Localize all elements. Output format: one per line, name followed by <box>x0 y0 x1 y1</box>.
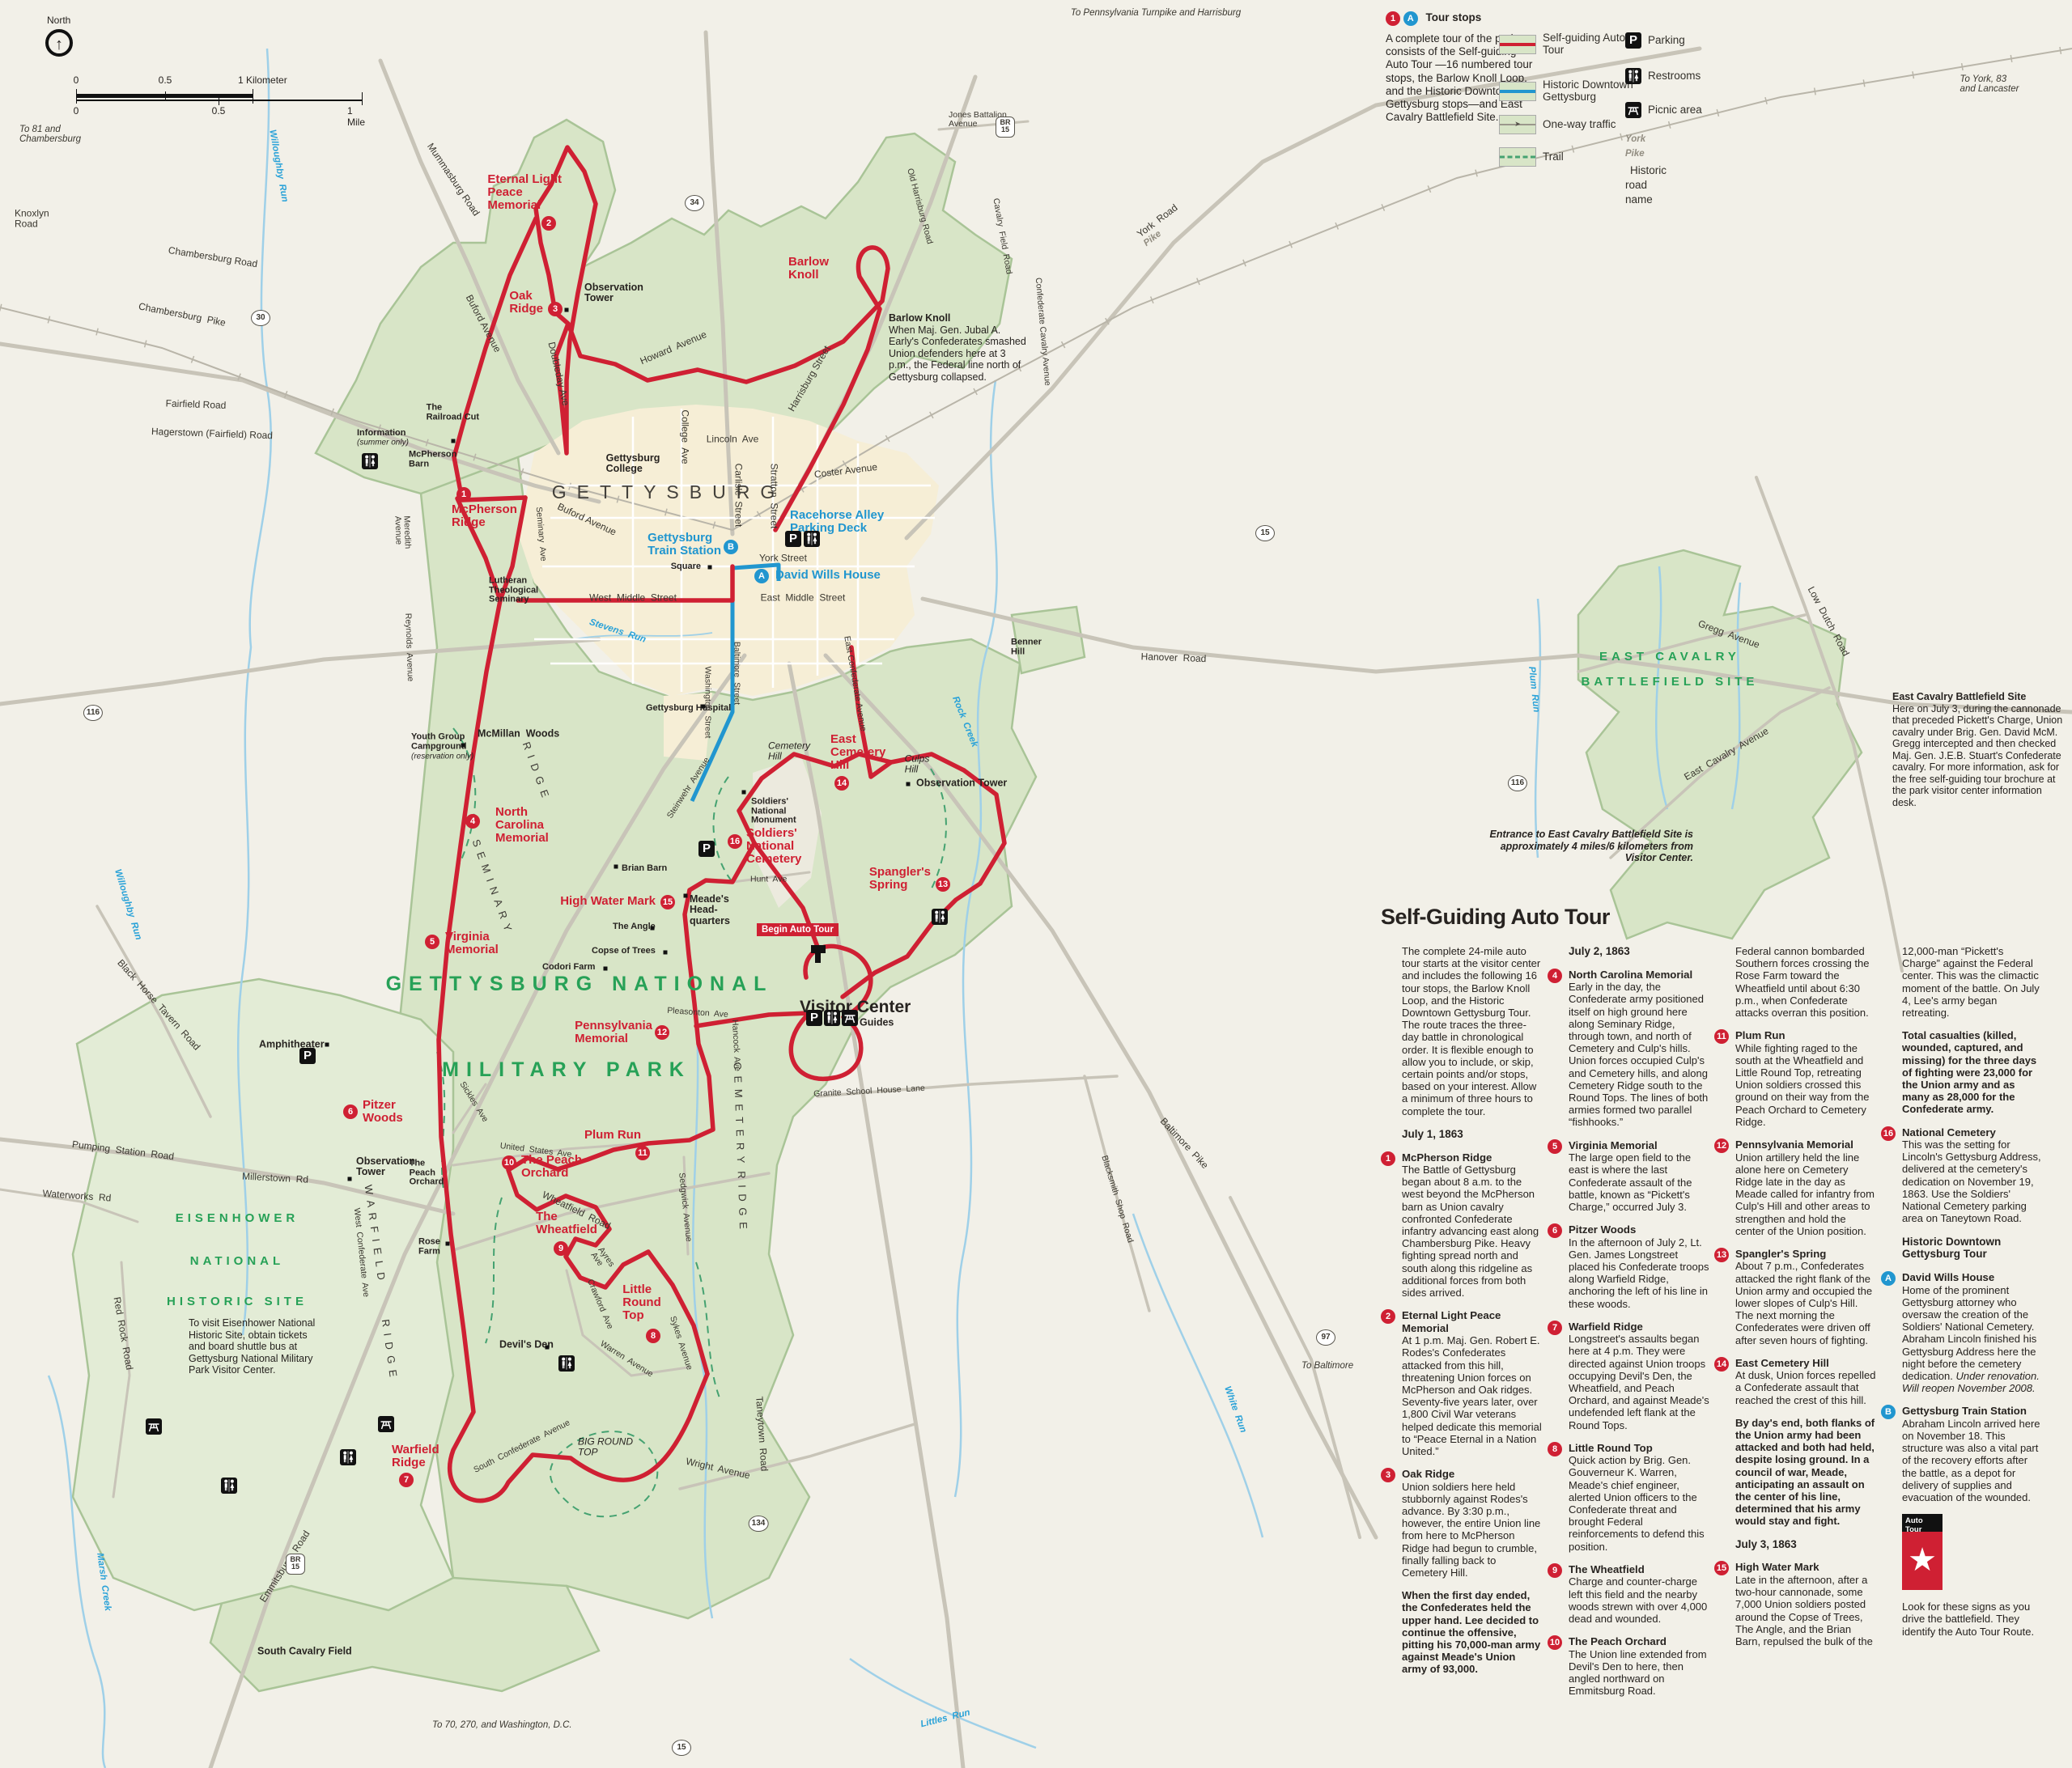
tour-stop-label-10: The Peach Orchard <box>521 1154 582 1180</box>
tour-stop-label-12: Pennsylvania Memorial <box>575 1020 652 1045</box>
legend-tour-stops-label: Tour stops <box>1426 11 1482 23</box>
map-label: GETTYSBURG <box>552 482 785 502</box>
article-stop-4: 4North Carolina MemorialEarly in the day… <box>1569 969 1709 1129</box>
restroom-icon <box>824 1010 840 1026</box>
tour-stop-3: 3 <box>548 302 563 316</box>
stop-title: Oak Ridge <box>1402 1468 1543 1480</box>
legend-swatch-downtown <box>1499 82 1536 101</box>
historic-road-label: Historic road name <box>1625 164 1667 206</box>
restroom-icon <box>804 531 820 547</box>
poi-dot <box>664 951 668 955</box>
map-label: Copse of Trees <box>592 947 656 956</box>
article-title: Self-Guiding Auto Tour <box>1381 905 1610 930</box>
poi-dot <box>651 926 655 931</box>
tour-stop-label-8: Little Round Top <box>622 1283 660 1322</box>
picnic-icon <box>146 1418 162 1435</box>
map-label: Lutheran Theological Seminary <box>489 577 538 605</box>
stop-number-icon: B <box>1881 1405 1896 1419</box>
stop-number-icon: 5 <box>1548 1139 1562 1154</box>
route-shield-116: 116 <box>83 705 103 721</box>
north-arrow-icon: ↑ <box>45 29 73 57</box>
tour-stop-9: 9 <box>554 1241 568 1256</box>
article-stop-3: 3Oak RidgeUnion soldiers here held stubb… <box>1402 1468 1543 1579</box>
poi-dot <box>906 782 911 786</box>
article-stop-A: ADavid Wills HouseHome of the prominent … <box>1902 1271 2043 1394</box>
tour-stop-11: 11 <box>635 1146 650 1160</box>
route-shield-34: 34 <box>685 195 704 211</box>
stop-title: Virginia Memorial <box>1569 1139 1709 1151</box>
parking-icon: P <box>299 1048 316 1064</box>
parking-icon: P <box>1625 32 1641 49</box>
tour-stop-label-11: Plum Run <box>584 1129 641 1142</box>
tour-stop-label-7: Warfield Ridge <box>392 1444 439 1469</box>
map-label: Guides <box>860 1017 894 1028</box>
legend-icon-wrap <box>1625 102 1641 118</box>
stop-title: East Cemetery Hill <box>1735 1357 1876 1369</box>
scale-tick: 0 <box>74 74 79 86</box>
scale-tick: 0.5 <box>159 74 172 86</box>
tour-stop-A: A <box>754 569 769 583</box>
article-stop-13: 13Spangler's SpringAbout 7 p.m., Confede… <box>1735 1248 1876 1346</box>
tour-stop-label-3: Oak Ridge <box>509 290 543 316</box>
route-shield-134: 134 <box>749 1516 769 1532</box>
article-stop-B: BGettysburg Train StationAbraham Lincoln… <box>1902 1405 2043 1503</box>
picnic-icon <box>1625 102 1641 118</box>
tour-stop-label-13: Spangler's Spring <box>869 866 931 892</box>
tour-stop-number-icon: 1 <box>1386 11 1400 26</box>
tour-stop-2: 2 <box>541 216 556 231</box>
note-barlow: Barlow KnollWhen Maj. Gen. Jubal A. Earl… <box>889 312 1028 383</box>
legend-tour-stops: 1 A Tour stops A complete tour of the pa… <box>1386 11 1533 124</box>
tour-stop-7: 7 <box>399 1473 414 1487</box>
article-bold-paragraph: Total casualties (killed, wounded, captu… <box>1902 1029 2043 1115</box>
map-label: Soldiers' National Monument <box>751 798 796 826</box>
tour-stop-15: 15 <box>660 895 675 909</box>
route-shield-97: 97 <box>1316 1329 1335 1346</box>
tour-stop-label-14: East Cemetery Hill <box>830 733 885 772</box>
legend-swatch-oneway <box>1499 115 1536 134</box>
article-paragraph: The complete 24-mile auto tour starts at… <box>1402 945 1543 1117</box>
tour-stop-4: 4 <box>465 814 480 829</box>
poi-dot <box>565 308 569 312</box>
tour-stop-label-15: High Water Mark <box>560 895 656 908</box>
article-stop-8: 8Little Round TopQuick action by Brig. G… <box>1569 1442 1709 1553</box>
map-label: To Pennsylvania Turnpike and Harrisburg <box>1071 8 1241 18</box>
legend-label: Parking <box>1648 35 1685 47</box>
article-stop-1: 1McPherson RidgeThe Battle of Gettysburg… <box>1402 1151 1543 1300</box>
parking-icon: P <box>785 531 801 547</box>
article-stop-6: 6Pitzer WoodsIn the afternoon of July 2,… <box>1569 1223 1709 1310</box>
tour-stop-label-16: Soldiers' National Cemetery <box>746 827 801 866</box>
tour-stop-label-B: Gettysburg Train Station <box>647 532 721 558</box>
article-stop-9: 9The WheatfieldCharge and counter-charge… <box>1569 1563 1709 1625</box>
article-stop-16: 16National CemeteryThis was the setting … <box>1902 1126 2043 1225</box>
legend-item-trail: Trail <box>1499 147 1564 167</box>
map-label: BATTLEFIELD SITE <box>1582 676 1759 689</box>
begin-auto-tour-tag: Begin Auto Tour <box>757 923 839 936</box>
map-label: East Middle Street <box>761 593 846 604</box>
map-label: Lincoln Ave <box>707 435 759 445</box>
legend-item-restroom: Restrooms <box>1625 68 1700 84</box>
gettysburg-park-map: North ↑ 00.51 Kilometer 00.51 Mile 1 A T… <box>0 0 2072 1768</box>
map-label: To 70, 270, and Washington, D.C. <box>432 1720 572 1730</box>
map-label: MILITARY PARK <box>442 1059 691 1081</box>
map-label: Hanover Road <box>1140 651 1206 664</box>
article-stop-5: 5Virginia MemorialThe large open field t… <box>1569 1139 1709 1213</box>
legend-icon-wrap: P <box>1625 32 1641 49</box>
legend-icon-wrap <box>1625 68 1641 84</box>
stop-title: David Wills House <box>1902 1271 2043 1283</box>
map-label: Reynolds Avenue <box>403 613 414 682</box>
map-label: Washington Street <box>703 667 711 739</box>
poi-dot <box>742 791 746 795</box>
legend-label: Restrooms <box>1648 70 1700 83</box>
tour-stop-6: 6 <box>343 1104 358 1119</box>
stop-number-icon: 4 <box>1548 969 1562 983</box>
stop-number-icon: 15 <box>1714 1561 1729 1575</box>
map-label: EAST CAVALRY <box>1599 651 1740 664</box>
legend-item-picnic: Picnic area <box>1625 102 1702 118</box>
map-label: Observation Tower <box>916 778 1007 788</box>
map-label: GETTYSBURG NATIONAL <box>386 973 774 995</box>
tour-stop-label-9: The Wheatfield <box>536 1210 597 1236</box>
route-shield-15: 15 <box>1255 525 1275 541</box>
article-stop-10: 10The Peach OrchardThe Union line extend… <box>1569 1635 1709 1697</box>
map-label: Gettysburg Hospital <box>646 704 731 714</box>
note-eisenhower: To visit Eisenhower National Historic Si… <box>189 1317 316 1376</box>
legend-swatch-auto <box>1499 35 1536 54</box>
stop-number-icon: A <box>1881 1271 1896 1286</box>
map-label: Square <box>671 562 701 572</box>
map-label: To Baltimore <box>1301 1361 1353 1371</box>
map-label: West Middle Street <box>589 593 677 604</box>
stop-title: Gettysburg Train Station <box>1902 1405 2043 1417</box>
poi-dot <box>325 1043 329 1047</box>
map-label: R I D G E <box>736 1171 749 1231</box>
map-label: To 81 and Chambersburg <box>19 125 81 144</box>
legend-item-auto: Self-guiding Auto Tour <box>1499 32 1625 57</box>
poi-dot <box>348 1177 352 1181</box>
scale-tick: 1 Kilometer <box>238 74 287 86</box>
article-stop-14: 14East Cemetery HillAt dusk, Union force… <box>1735 1357 1876 1406</box>
auto-tour-sign: Auto Tour★ <box>1902 1514 1942 1590</box>
map-label: Cemetery Hill <box>768 740 810 761</box>
scale-tick: 0.5 <box>212 105 226 117</box>
map-label: South Cavalry Field <box>257 1646 352 1656</box>
poi-dot <box>614 865 618 869</box>
map-label: Observation Tower <box>356 1156 415 1178</box>
stop-title: National Cemetery <box>1902 1126 2043 1138</box>
legend-item-oneway: One-way traffic <box>1499 115 1616 134</box>
map-label: The Angle <box>613 922 656 932</box>
legend-item-downtown: Historic Downtown Gettysburg <box>1499 79 1633 104</box>
stop-italic-note: Under renovation. Will reopen November 2… <box>1902 1370 2040 1394</box>
map-label: EISENHOWER <box>176 1212 299 1225</box>
stop-title: Plum Run <box>1735 1029 1876 1041</box>
restroom-icon <box>221 1478 237 1494</box>
auto-tour-sign-header: Auto Tour <box>1902 1514 1942 1532</box>
map-label: (reservation only) <box>411 753 473 762</box>
article-stop-15: 15High Water MarkLate in the afternoon, … <box>1735 1561 1876 1647</box>
map-label: College Ave <box>680 409 690 464</box>
article-bold-paragraph: By day's end, both flanks of the Union a… <box>1735 1417 1876 1528</box>
map-label: Barlow Knoll <box>788 256 829 282</box>
stop-number-icon: 10 <box>1548 1635 1562 1650</box>
stop-number-icon: 16 <box>1881 1126 1896 1141</box>
map-label: Meredith Avenue <box>393 515 412 549</box>
poi-dot <box>708 566 712 570</box>
stop-number-icon: 1 <box>1381 1151 1395 1166</box>
tour-stop-16: 16 <box>728 834 742 849</box>
scale-tick: 0 <box>74 105 79 117</box>
stop-number-icon: 9 <box>1548 1563 1562 1578</box>
tour-stop-12: 12 <box>655 1025 669 1040</box>
note-entrance: Entrance to East Cavalry Battlefield Sit… <box>1480 829 1693 864</box>
restroom-icon <box>558 1355 575 1372</box>
article-stop-2: 2Eternal Light Peace MemorialAt 1 p.m. M… <box>1402 1309 1543 1457</box>
map-label: McMillan Woods <box>478 728 559 739</box>
map-label: McPherson Barn <box>409 450 456 468</box>
stop-number-icon: 3 <box>1381 1468 1395 1482</box>
legend-label: Self-guiding Auto Tour <box>1543 32 1625 57</box>
tour-stop-14: 14 <box>834 776 849 791</box>
article-heading: July 2, 1863 <box>1569 945 1709 958</box>
restroom-icon <box>932 909 948 925</box>
map-label: To York, 83 and Lancaster <box>1960 74 2019 94</box>
map-label: Culps Hill <box>905 753 930 774</box>
tour-stop-B: B <box>724 540 738 554</box>
legend-item-parking: PParking <box>1625 32 1685 49</box>
route-shield-30: 30 <box>251 310 270 326</box>
map-label: Fairfield Road <box>165 398 226 410</box>
route-shield-BR15: BR 15 <box>996 117 1015 138</box>
map-label: Observation Tower <box>584 282 643 304</box>
map-label: Meade's Head- quarters <box>690 894 730 926</box>
tour-stop-letter-icon: A <box>1403 11 1418 26</box>
article-bold-paragraph: When the first day ended, the Confederat… <box>1402 1589 1543 1675</box>
poi-dot <box>702 705 706 709</box>
stop-title: High Water Mark <box>1735 1561 1876 1573</box>
poi-dot <box>452 439 456 443</box>
tour-stop-label-1: McPherson Ridge <box>452 503 517 529</box>
map-label: Information <box>357 429 406 439</box>
tour-stop-1: 1 <box>456 487 471 502</box>
parking-icon: P <box>698 841 715 857</box>
legend-historic-road: York Pike Historic road name <box>1625 134 1667 207</box>
article-column-1: The complete 24-mile auto tour starts at… <box>1381 945 1543 1686</box>
map-label: C E M E T E R Y <box>732 1062 746 1164</box>
map-label: Codori Farm <box>542 963 595 973</box>
tour-stop-8: 8 <box>646 1329 660 1343</box>
map-label: The Peach Orchard <box>410 1160 444 1188</box>
poi-dot <box>604 967 608 971</box>
tour-stop-5: 5 <box>425 935 439 949</box>
article-paragraph: Federal cannon bombarded Southern forces… <box>1735 945 1876 1019</box>
route-shield-116: 116 <box>1508 775 1527 791</box>
scale-tick: 1 Mile <box>347 105 365 128</box>
restroom-icon <box>340 1449 356 1465</box>
map-label: Carlisle Street <box>733 464 744 528</box>
article-stop-12: 12Pennsylvania MemorialUnion artillery h… <box>1735 1138 1876 1237</box>
tour-stop-10: 10 <box>502 1155 516 1170</box>
map-label: Benner Hill <box>1011 638 1042 656</box>
map-label: York Street <box>759 553 807 564</box>
tour-stop-13: 13 <box>936 877 950 892</box>
poi-dot <box>684 894 688 898</box>
article-heading: July 3, 1863 <box>1735 1538 1876 1551</box>
route-shield-15: 15 <box>672 1740 691 1756</box>
poi-dot <box>461 744 465 748</box>
article-stop-11: 11Plum RunWhile fighting raged to the so… <box>1735 1029 1876 1128</box>
article-column-4: 12,000-man “Pickett's Charge” against th… <box>1881 945 2043 1648</box>
stop-title: Little Round Top <box>1569 1442 1709 1454</box>
stop-number-icon: 6 <box>1548 1223 1562 1238</box>
parking-icon: P <box>806 1010 822 1026</box>
legend-label: Historic Downtown Gettysburg <box>1543 79 1633 104</box>
map-label: The Railroad Cut <box>427 403 479 422</box>
tour-stop-label-5: Virginia Memorial <box>445 931 499 956</box>
map-label: NATIONAL <box>190 1255 284 1268</box>
km-bar <box>76 94 253 98</box>
map-label: Baltimore Street <box>732 642 741 705</box>
map-label: Hunt Ave <box>750 875 787 884</box>
article-paragraph: 12,000-man “Pickett's Charge” against th… <box>1902 945 2043 1019</box>
map-label: Youth Group Campground <box>411 732 466 751</box>
route-shield-BR15: BR 15 <box>286 1554 305 1575</box>
stop-title: The Peach Orchard <box>1569 1635 1709 1647</box>
historic-road-example: York Pike <box>1625 134 1645 159</box>
stop-title: Eternal Light Peace Memorial <box>1402 1309 1543 1334</box>
restroom-icon <box>362 453 378 469</box>
legend-label: Picnic area <box>1648 104 1702 117</box>
stop-title: North Carolina Memorial <box>1569 969 1709 981</box>
tour-stop-label-4: North Carolina Memorial <box>495 806 549 845</box>
auto-tour-sign-star-icon: ★ <box>1902 1532 1942 1590</box>
restroom-icon <box>1625 68 1641 84</box>
note-east-cavalry: East Cavalry Battlefield SiteHere on Jul… <box>1892 691 2064 808</box>
article-column-3: Federal cannon bombarded Southern forces… <box>1714 945 1876 1658</box>
article-paragraph: Look for these signs as you drive the ba… <box>1902 1601 2043 1638</box>
stop-number-icon: 13 <box>1714 1248 1729 1262</box>
map-label: Gettysburg College <box>606 453 660 475</box>
stop-number-icon: 12 <box>1714 1138 1729 1153</box>
picnic-icon <box>378 1416 394 1432</box>
north-label: North <box>47 15 70 26</box>
stop-number-icon: 11 <box>1714 1029 1729 1044</box>
stop-title: Pitzer Woods <box>1569 1223 1709 1236</box>
stop-title: Pennsylvania Memorial <box>1735 1138 1876 1151</box>
article-heading: Historic Downtown Gettysburg Tour <box>1902 1236 2043 1261</box>
stop-title: McPherson Ridge <box>1402 1151 1543 1164</box>
poi-dot <box>446 1242 450 1246</box>
stop-title: Warfield Ridge <box>1569 1321 1709 1333</box>
map-label: HISTORIC SITE <box>167 1295 308 1308</box>
legend-swatch-trail <box>1499 147 1536 167</box>
map-label: Brian Barn <box>622 864 667 874</box>
tour-stop-label-A: David Wills House <box>775 569 881 582</box>
legend-label: Trail <box>1543 151 1564 163</box>
map-label: Rose Farm <box>418 1237 440 1256</box>
article-heading: July 1, 1863 <box>1402 1128 1543 1141</box>
tour-stop-label-2: Eternal Light Peace Memorial <box>487 173 562 212</box>
stop-title: The Wheatfield <box>1569 1563 1709 1575</box>
tour-stop-label-6: Pitzer Woods <box>363 1099 403 1125</box>
map-label: BIG ROUND TOP <box>578 1436 633 1456</box>
stop-number-icon: 7 <box>1548 1321 1562 1335</box>
stop-title: Spangler's Spring <box>1735 1248 1876 1260</box>
map-label: Stratton Street <box>769 464 779 529</box>
stop-number-icon: 8 <box>1548 1442 1562 1456</box>
article-stop-7: 7Warfield RidgeLongstreet's assaults beg… <box>1569 1321 1709 1431</box>
stop-number-icon: 2 <box>1381 1309 1395 1324</box>
legend-label: One-way traffic <box>1543 119 1616 131</box>
picnic-icon <box>842 1010 858 1026</box>
map-label: (summer only) <box>357 439 409 448</box>
poi-dot <box>546 1346 550 1350</box>
stop-number-icon: 14 <box>1714 1357 1729 1372</box>
article-column-2: July 2, 18634North Carolina MemorialEarl… <box>1548 945 1709 1707</box>
map-label: Knoxlyn Road <box>15 208 49 228</box>
scale-box: North ↑ 00.51 Kilometer 00.51 Mile <box>28 8 367 121</box>
